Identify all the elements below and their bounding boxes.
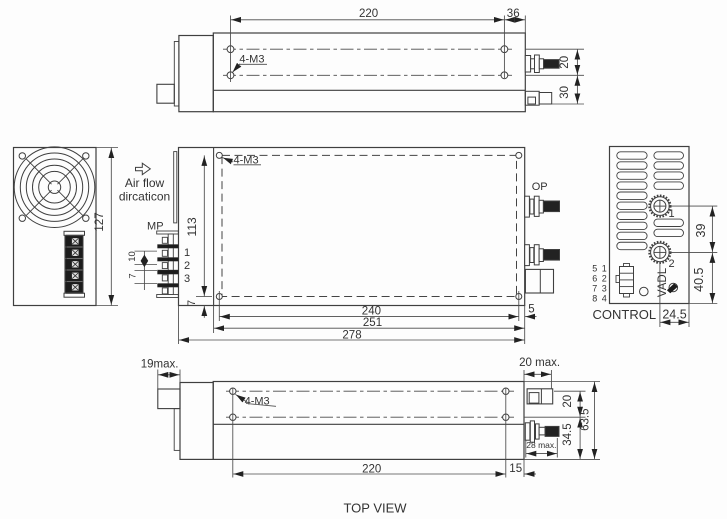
svg-text:19max.: 19max.: [141, 358, 179, 370]
svg-text:7: 7: [186, 300, 198, 306]
svg-text:2: 2: [669, 258, 675, 270]
svg-text:4-M3: 4-M3: [239, 53, 264, 65]
svg-text:5: 5: [592, 264, 597, 274]
svg-text:220: 220: [359, 8, 378, 20]
svg-text:1: 1: [668, 208, 674, 220]
svg-text:30: 30: [559, 86, 571, 99]
svg-text:28 max.: 28 max.: [526, 440, 556, 450]
svg-text:3: 3: [184, 273, 190, 285]
svg-text:15: 15: [509, 463, 522, 475]
svg-text:113: 113: [185, 217, 199, 236]
svg-text:dircaticon: dircaticon: [119, 190, 170, 204]
svg-text:34.5: 34.5: [562, 423, 574, 445]
svg-text:4: 4: [602, 293, 607, 303]
svg-text:3: 3: [602, 284, 607, 294]
svg-text:20 max.: 20 max.: [519, 357, 560, 369]
svg-text:278: 278: [342, 329, 361, 341]
svg-text:OP: OP: [532, 181, 548, 193]
svg-text:251: 251: [363, 317, 382, 329]
svg-text:CONTROL: CONTROL: [593, 307, 657, 322]
svg-text:220: 220: [362, 463, 381, 475]
svg-text:127: 127: [94, 212, 106, 231]
svg-text:1: 1: [602, 264, 607, 274]
svg-text:5: 5: [528, 304, 534, 316]
svg-text:8: 8: [592, 293, 597, 303]
svg-text:VADL: VADL: [657, 267, 669, 297]
svg-text:7: 7: [592, 284, 597, 294]
svg-text:20: 20: [562, 395, 574, 408]
svg-text:1: 1: [184, 247, 190, 259]
svg-text:40.5: 40.5: [692, 267, 706, 291]
svg-text:39: 39: [694, 224, 708, 238]
svg-text:6: 6: [592, 274, 597, 284]
svg-text:TOP VIEW: TOP VIEW: [343, 501, 407, 516]
svg-text:20: 20: [559, 56, 571, 69]
svg-text:2: 2: [184, 260, 190, 272]
svg-text:24.5: 24.5: [662, 307, 686, 321]
svg-text:10: 10: [127, 251, 138, 262]
svg-text:MP: MP: [147, 220, 164, 232]
svg-text:2: 2: [602, 274, 607, 284]
svg-text:63.5: 63.5: [580, 409, 592, 431]
svg-text:36: 36: [507, 8, 520, 20]
svg-text:240: 240: [362, 305, 381, 317]
svg-text:7: 7: [128, 273, 139, 278]
svg-text:Air flow: Air flow: [125, 176, 165, 190]
